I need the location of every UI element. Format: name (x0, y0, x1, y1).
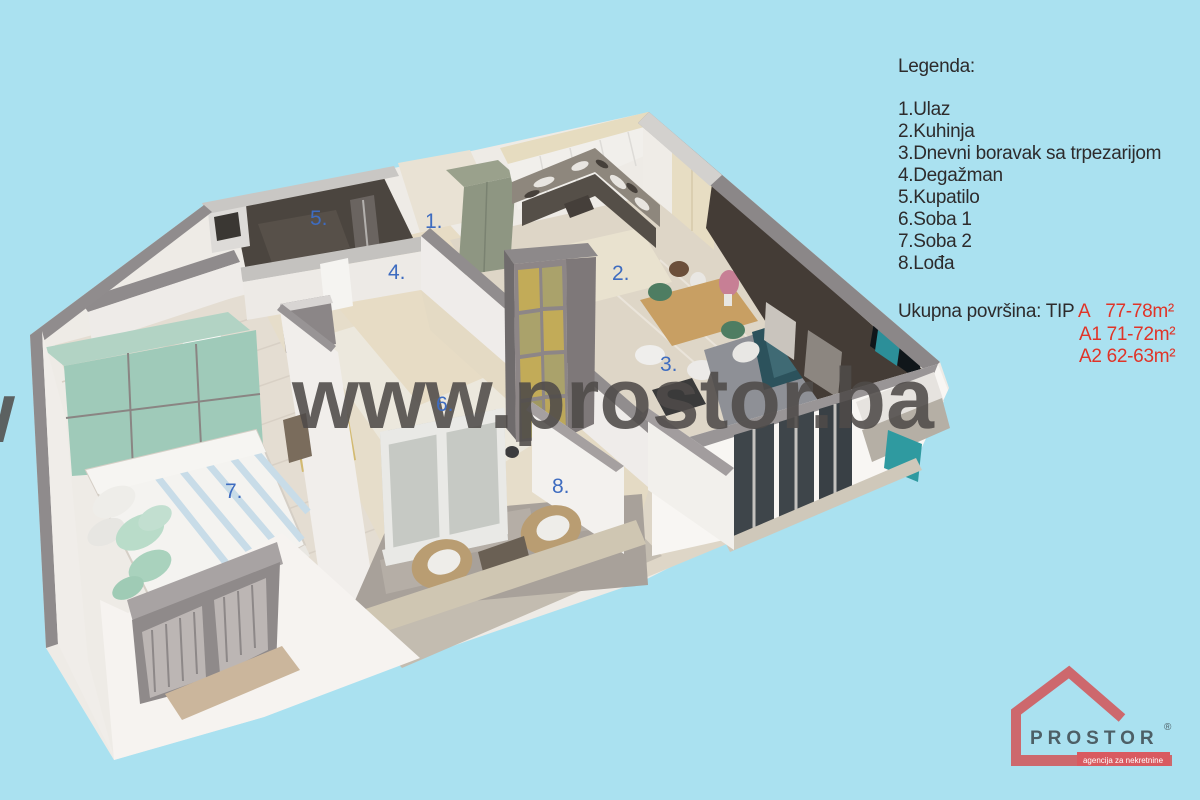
svg-text:PROSTOR: PROSTOR (1030, 728, 1159, 749)
svg-text:2.: 2. (612, 262, 630, 285)
svg-text:www.prostor.ba: www.prostor.ba (291, 351, 935, 447)
svg-text:6.Soba 1: 6.Soba 1 (898, 209, 972, 230)
svg-text:7.Soba 2: 7.Soba 2 (898, 231, 972, 252)
svg-text:agencija za nekretnine: agencija za nekretnine (1083, 756, 1164, 765)
svg-text:6.: 6. (436, 393, 454, 416)
svg-text:2.Kuhinja: 2.Kuhinja (898, 121, 975, 142)
svg-text:4.Degažman: 4.Degažman (898, 165, 1003, 186)
svg-text:7.: 7. (225, 480, 243, 503)
svg-text:Legenda:: Legenda: (898, 56, 975, 77)
svg-text:1.: 1. (425, 210, 443, 233)
svg-text:4.: 4. (388, 261, 406, 284)
svg-text:A1 71-72m²: A1 71-72m² (1079, 324, 1175, 345)
svg-text:A2 62-63m²: A2 62-63m² (1079, 346, 1175, 367)
svg-text:®: ® (1164, 722, 1172, 733)
svg-text:8.Lođa: 8.Lođa (898, 253, 955, 274)
svg-text:8.: 8. (552, 475, 570, 498)
svg-text:3.: 3. (660, 353, 678, 376)
svg-text:5.Kupatilo: 5.Kupatilo (898, 187, 980, 208)
svg-text:5.: 5. (310, 207, 328, 230)
svg-text:Ukupna površina: TIP A 77-78: Ukupna površina: TIP A 77-78m² (898, 301, 1174, 322)
svg-text:w: w (0, 365, 16, 461)
svg-text:1.Ulaz: 1.Ulaz (898, 99, 950, 120)
svg-text:3.Dnevni boravak sa trpezarijo: 3.Dnevni boravak sa trpezarijom (898, 143, 1161, 164)
